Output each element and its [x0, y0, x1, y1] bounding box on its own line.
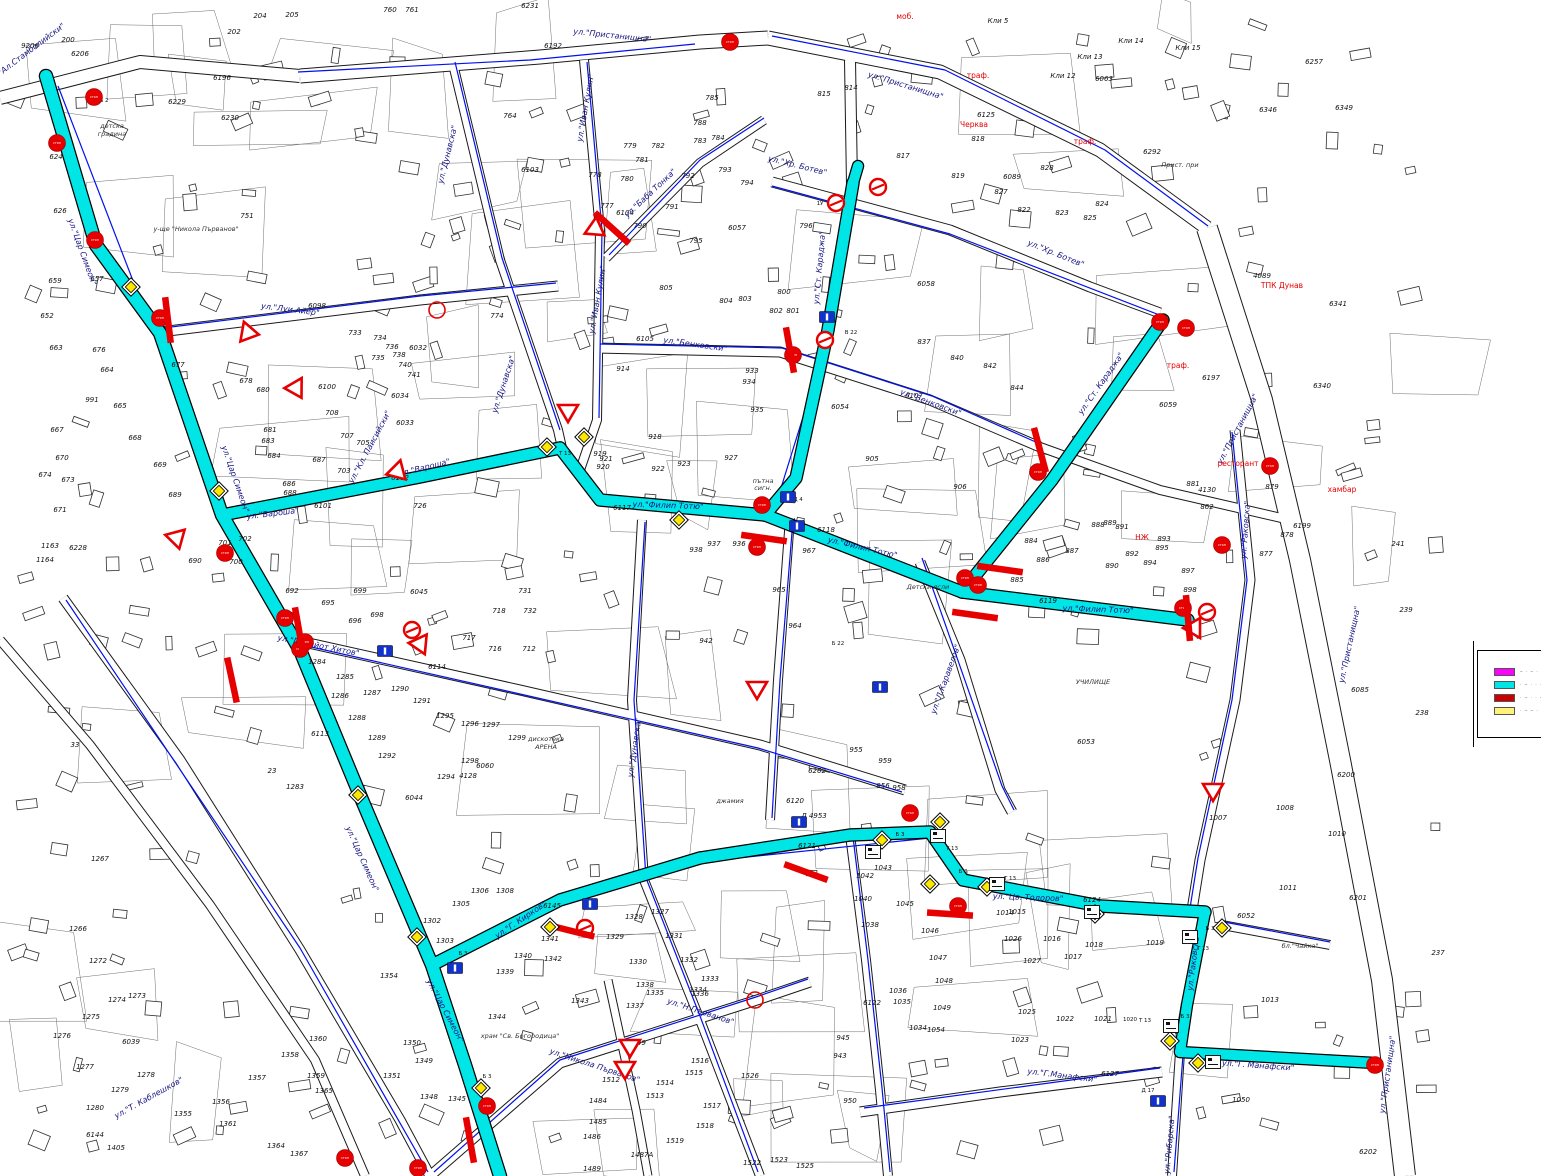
- parcel-number: 1355: [174, 1110, 192, 1118]
- parcel-number: 1008: [1276, 804, 1294, 812]
- stop-sign-icon: стоп: [1178, 320, 1195, 337]
- building-footprint: [129, 605, 149, 616]
- info-sign-icon: [820, 312, 835, 323]
- parcel-number: 1266: [69, 925, 87, 933]
- parcel-number: 1489: [583, 1165, 601, 1173]
- parcel-number: 683: [261, 437, 274, 445]
- parcel-number: 6196: [213, 74, 231, 82]
- parcel-number: 671: [53, 506, 66, 514]
- parcel-number: 1333: [701, 975, 719, 983]
- parcel-number: 700: [229, 558, 243, 566]
- parcel-number: 1523: [770, 1156, 788, 1164]
- parcel-boundary: [169, 1042, 221, 1143]
- parcel-number: 1351: [383, 1072, 401, 1080]
- parcel-number: 967: [802, 547, 816, 555]
- parcel-number: 667: [50, 426, 64, 434]
- building-footprint: [223, 1001, 239, 1018]
- parcel-number: 740: [398, 361, 412, 369]
- building-footprint: [18, 572, 34, 584]
- parcel-number: 1284: [308, 658, 326, 666]
- parcel-number: 991: [85, 396, 98, 404]
- building-footprint: [1064, 519, 1080, 530]
- parcel-number: 955: [849, 746, 863, 754]
- building-footprint: [1248, 19, 1267, 31]
- building-footprint: [1230, 54, 1252, 70]
- building-footprint: [590, 865, 599, 877]
- parcel-boundary: [743, 995, 835, 1107]
- building-footprint: [1244, 428, 1259, 438]
- legend-item-label: · – · · · –: [1520, 682, 1541, 687]
- poi-label: храм "Св. Богородица": [480, 1032, 559, 1040]
- parcel-number: 1027: [1023, 957, 1041, 965]
- stop-sign-icon: стоп: [1262, 458, 1279, 475]
- info-sign-icon: [873, 682, 888, 693]
- parcel-number: 898: [1183, 586, 1197, 594]
- building-footprint: [489, 297, 502, 307]
- map-legend: · · · · · – · – · – · – · – · · · – · – …: [1477, 650, 1541, 738]
- parcel-number: 793: [718, 166, 731, 174]
- building-layer: [5, 19, 1443, 1159]
- building-footprint: [1405, 991, 1421, 1007]
- building-footprint: [504, 219, 521, 229]
- building-footprint: [430, 267, 438, 284]
- parcel-number: 6292: [1143, 148, 1161, 156]
- poi-label-red: ресторант: [1217, 459, 1259, 468]
- stop-sign-icon: стоп: [410, 1160, 427, 1176]
- building-footprint: [200, 293, 221, 312]
- parcel-number: 1525: [796, 1162, 814, 1170]
- legend-item-label: · – · · –: [1520, 695, 1541, 700]
- parcel-number: 738: [392, 351, 406, 359]
- parcel-number: 1040: [854, 895, 872, 903]
- parcel-number: 1331: [665, 932, 683, 940]
- parcel-number: 673: [61, 476, 74, 484]
- building-footprint: [884, 255, 895, 271]
- building-footprint: [704, 577, 722, 595]
- parcel-number: 731: [518, 587, 531, 595]
- parcel-number: 805: [659, 284, 673, 292]
- building-footprint: [72, 416, 89, 427]
- building-footprint: [1053, 1046, 1068, 1056]
- parcel-number: 202: [227, 28, 241, 36]
- parcel-number: 828: [1040, 164, 1054, 172]
- stop-sign-icon: стоп: [1367, 1057, 1384, 1074]
- building-footprint: [308, 91, 331, 107]
- svg-text:стоп: стоп: [221, 551, 229, 555]
- building-footprint: [1126, 213, 1152, 236]
- parcel-number: 956: [876, 782, 890, 790]
- parcel-number: 1050: [1232, 1096, 1250, 1104]
- building-footprint: [865, 105, 874, 115]
- street-label: ул."Пристанищна": [1337, 605, 1362, 684]
- parcel-number: Кли 14: [1118, 37, 1143, 45]
- info-sign-icon: [792, 817, 807, 828]
- building-footprint: [421, 232, 435, 248]
- building-footprint: [933, 446, 945, 460]
- parcel-number: 881: [1186, 480, 1199, 488]
- building-footprint: [522, 1001, 539, 1014]
- building-footprint: [951, 200, 974, 213]
- parcel-number: 1342: [544, 955, 562, 963]
- building-footprint: [910, 1080, 926, 1091]
- building-footprint: [1039, 1046, 1048, 1056]
- building-footprint: [1365, 437, 1380, 444]
- parcel-number: 1018: [1085, 941, 1103, 949]
- parcel-number: 6127: [1101, 1070, 1119, 1078]
- no-entry-sign-icon: [828, 195, 844, 211]
- yield-sign-icon: [558, 405, 578, 422]
- sign-plate-icon: [990, 878, 1005, 891]
- sign-plate-icon: [1085, 906, 1100, 919]
- parcel-number: 1296: [461, 720, 479, 728]
- building-footprint: [44, 642, 60, 661]
- sign-code-label: Т 13: [1196, 946, 1210, 952]
- building-footprint: [255, 446, 266, 455]
- parcel-number: 814: [844, 84, 857, 92]
- parcel-number: 1163: [41, 542, 59, 550]
- parcel-number: 922: [651, 465, 665, 473]
- building-footprint: [113, 909, 127, 918]
- poi-label-red: НЖ: [1135, 533, 1149, 542]
- street-label: ул."Цв. Тодоров": [992, 892, 1064, 903]
- poi-label: УЧИЛИЩЕ: [1076, 678, 1111, 686]
- parcel-number: 6262: [808, 767, 826, 775]
- parcel-number: 1035: [893, 998, 911, 1006]
- building-footprint: [1367, 419, 1380, 430]
- building-footprint: [1076, 34, 1089, 46]
- parcel-number: 6229: [168, 98, 186, 106]
- parcel-number: 6113: [311, 730, 329, 738]
- parcel-number: 1522: [743, 1159, 761, 1167]
- parcel-number: 819: [951, 172, 965, 180]
- parcel-number: 6057: [728, 224, 746, 232]
- parcel-number: 676: [92, 346, 106, 354]
- parcel-number: 918: [648, 433, 662, 441]
- parcel-number: 678: [239, 377, 253, 385]
- parcel-number: 815: [817, 90, 831, 98]
- building-footprint: [1026, 833, 1044, 845]
- building-footprint: [1416, 1030, 1430, 1043]
- building-footprint: [658, 228, 680, 236]
- sign-plate-icon: [1164, 1020, 1179, 1033]
- parcel-number: 702: [238, 535, 252, 543]
- parcel-number: 6045: [410, 588, 428, 596]
- parcel-number: 4089: [1253, 272, 1271, 280]
- parcel-number: 6144: [86, 1131, 104, 1139]
- parcel-number: 781: [635, 156, 648, 164]
- svg-text:стоп: стоп: [91, 238, 99, 242]
- parcel-number: 6125: [977, 111, 995, 119]
- parcel-number: 1367: [290, 1150, 308, 1158]
- building-footprint: [1003, 1058, 1019, 1077]
- poi-label-red: Черква: [960, 120, 988, 129]
- parcel-number: 1034: [909, 1024, 927, 1032]
- parcel-number: 6039: [122, 1038, 140, 1046]
- parcel-number: 6060: [476, 762, 494, 770]
- parcel-boundary: [1352, 506, 1396, 586]
- parcel-boundary: [1390, 333, 1491, 395]
- building-footprint: [782, 704, 794, 718]
- parcel-number: 1022: [1056, 1015, 1074, 1023]
- stop-sign-icon: стоп: [1152, 314, 1169, 331]
- parcel-number: 668: [128, 434, 142, 442]
- building-footprint: [372, 665, 382, 679]
- building-footprint: [1398, 286, 1423, 305]
- building-footprint: [242, 189, 256, 196]
- parcel-number: 1334: [689, 986, 707, 994]
- parcel-number: 844: [1010, 384, 1023, 392]
- poi-label: бл."Чайка": [1282, 942, 1319, 950]
- building-footprint: [353, 888, 361, 899]
- yield-sign-icon: [165, 530, 189, 552]
- parcel-number: 6192: [544, 42, 562, 50]
- building-footprint: [135, 93, 153, 107]
- parcel-number: 716: [488, 645, 502, 653]
- stop-sign-icon: стоп: [87, 232, 104, 249]
- parcel-number: 6063: [1095, 75, 1113, 83]
- svg-text:стоп: стоп: [1182, 326, 1190, 330]
- parcel-number: 788: [693, 119, 707, 127]
- building-footprint: [1196, 1107, 1206, 1119]
- parcel-number: 1025: [1018, 1008, 1036, 1016]
- parcel-number: 1343: [571, 997, 589, 1005]
- poi-label-red: хамбар: [1328, 485, 1357, 494]
- parcel-number: 804: [719, 297, 732, 305]
- building-footprint: [1405, 166, 1416, 174]
- parcel-number: 818: [971, 135, 985, 143]
- building-footprint: [153, 245, 163, 256]
- legend-swatch-cyan-icon: [1494, 681, 1515, 689]
- parcel-number: 1007: [1209, 814, 1227, 822]
- legend-swatch-magenta-icon: [1494, 668, 1515, 676]
- building-footprint: [449, 217, 465, 234]
- parcel-number: 923: [677, 460, 690, 468]
- poi-label-red: ТПК Дунав: [1260, 281, 1303, 290]
- parcel-number: 1290: [391, 685, 409, 693]
- sign-plate-icon: [1183, 931, 1198, 944]
- building-footprint: [347, 385, 359, 399]
- parcel-number: 905: [865, 455, 879, 463]
- parcel-number: 784: [711, 134, 724, 142]
- sign-code-label: Б 3: [458, 951, 468, 957]
- building-footprint: [1428, 537, 1443, 554]
- parcel-number: 735: [371, 354, 385, 362]
- priority-road-sign-icon: [541, 918, 559, 936]
- building-footprint: [1260, 1118, 1279, 1130]
- legend-item: · – – · ·: [1494, 704, 1541, 717]
- parcel-number: 897: [1181, 567, 1195, 575]
- poi-label-red: траф.: [1167, 361, 1190, 370]
- parcel-number: 934: [742, 378, 755, 386]
- parcel-number: 1274: [108, 996, 126, 1004]
- poi-label-red: моб.: [896, 12, 913, 21]
- street-label: ул."Ст. Караджа": [812, 231, 827, 306]
- parcel-number: 886: [1036, 556, 1050, 564]
- parcel-number: 1359: [307, 1072, 325, 1080]
- building-footprint: [110, 954, 125, 965]
- building-footprint: [341, 895, 353, 903]
- parcel-number: 6341: [1329, 300, 1347, 308]
- parcel-number: 764: [503, 112, 516, 120]
- sign-code-label: В 22: [845, 330, 858, 336]
- building-footprint: [475, 477, 500, 497]
- parcel-number: 1305: [452, 900, 470, 908]
- parcel-number: 1010: [1328, 830, 1346, 838]
- parcel-number: 1285: [336, 673, 354, 681]
- parcel-number: 659: [48, 277, 62, 285]
- stop-sign-icon: стоп: [722, 34, 739, 51]
- parcel-number: 796: [799, 222, 813, 230]
- building-footprint: [430, 341, 443, 359]
- info-sign-icon: [781, 492, 796, 503]
- building-footprint: [331, 47, 340, 63]
- parcel-number: 1287: [363, 689, 381, 697]
- parcel-number: 23: [268, 767, 277, 775]
- parcel-number: 1295: [436, 712, 454, 720]
- building-footprint: [166, 636, 173, 650]
- parcel-number: 921: [599, 455, 612, 463]
- building-footprint: [580, 572, 597, 582]
- parcel-number: 893: [1157, 535, 1170, 543]
- parcel-number: 783: [693, 137, 706, 145]
- svg-text:стоп: стоп: [1371, 1063, 1379, 1067]
- parcel-number: 1308: [496, 887, 514, 895]
- svg-text:стоп: стоп: [974, 583, 982, 587]
- cadastral-map-canvas[interactable]: 9206200620620220420561967607616231619262…: [0, 0, 1541, 1176]
- poi-label: Прист. при: [1161, 161, 1198, 169]
- parcel-number: 958: [892, 784, 906, 792]
- parcel-number: 1516: [691, 1057, 709, 1065]
- parcel-boundary: [720, 891, 800, 962]
- building-footprint: [768, 268, 779, 282]
- parcel-number: 895: [1155, 544, 1169, 552]
- building-footprint: [922, 418, 943, 439]
- building-footprint: [390, 567, 400, 577]
- sign-code-label: Б 22: [832, 641, 845, 647]
- parcel-number: 6121: [798, 842, 816, 850]
- parcel-number: 1356: [212, 1098, 230, 1106]
- poi-label: градина: [98, 130, 126, 138]
- parcel-number: 670: [55, 454, 69, 462]
- building-footprint: [485, 71, 503, 87]
- parcel-number: 802: [769, 307, 783, 315]
- parcel-number: 6340: [1313, 382, 1331, 390]
- parcel-number: 1405: [107, 1144, 125, 1152]
- svg-text:стоп: стоп: [1218, 543, 1226, 547]
- building-footprint: [834, 513, 843, 523]
- parcel-number: 726: [413, 502, 427, 510]
- building-footprint: [940, 540, 951, 554]
- parcel-number: 1292: [378, 752, 396, 760]
- building-footprint: [288, 1080, 311, 1092]
- building-footprint: [373, 273, 394, 285]
- parcel-number: 794: [740, 179, 753, 187]
- yield-sign-icon: [284, 378, 310, 403]
- building-footprint: [399, 161, 420, 175]
- stop-sign-icon: стоп: [49, 135, 66, 152]
- building-footprint: [752, 139, 767, 152]
- building-footprint: [196, 641, 217, 657]
- building-footprint: [87, 1140, 99, 1152]
- parcel-number: 1357: [248, 1074, 266, 1082]
- legend-item-label: · – – · ·: [1520, 708, 1541, 713]
- parcel-number: 1365: [315, 1087, 333, 1095]
- building-footprint: [546, 650, 556, 662]
- building-footprint: [451, 233, 460, 241]
- street-surface: [0, 640, 365, 1176]
- parcel-number: 1021: [1094, 1015, 1112, 1023]
- parcel-number: 6124: [1083, 896, 1101, 904]
- building-footprint: [59, 982, 76, 1001]
- building-footprint: [957, 1141, 978, 1159]
- parcel-number: 1267: [91, 855, 109, 863]
- parcel-number: 777: [600, 202, 614, 210]
- building-footprint: [1350, 48, 1371, 61]
- parcel-number: 891: [1115, 523, 1128, 531]
- parcel-number: 943: [833, 1052, 846, 1060]
- parcel-number: 1487А: [631, 1151, 654, 1159]
- sign-code-label: Б 3: [958, 869, 968, 875]
- road-closure-bar-icon: [224, 657, 240, 703]
- building-footprint: [843, 588, 855, 601]
- parcel-number: 239: [1399, 606, 1413, 614]
- stop-sign-icon: стоп: [217, 545, 234, 562]
- svg-text:стоп: стоп: [414, 1166, 422, 1170]
- parcel-number: 669: [153, 461, 167, 469]
- building-footprint: [853, 622, 864, 639]
- parcel-number: 1011: [1279, 884, 1297, 892]
- sign-plate-icon: [1206, 1056, 1221, 1069]
- parcel-number: 878: [1280, 531, 1294, 539]
- sign-code-label: Б 3: [482, 1074, 492, 1080]
- building-footprint: [608, 306, 629, 321]
- parcel-number: 1294: [437, 773, 455, 781]
- street-surface: [770, 518, 790, 820]
- building-footprint: [966, 796, 983, 806]
- parcel-number: 884: [1024, 537, 1037, 545]
- parcel-number: 200: [61, 36, 75, 44]
- building-footprint: [289, 1006, 309, 1019]
- parcel-number: 1277: [76, 1063, 94, 1071]
- svg-text:стоп: стоп: [1266, 464, 1274, 468]
- sign-plate-icon: [931, 830, 946, 843]
- stop-sign-icon: стоп: [902, 805, 919, 822]
- building-footprint: [25, 285, 42, 303]
- parcel-boundary: [600, 440, 672, 534]
- parcel-number: 733: [348, 329, 361, 337]
- parcel-number: 1329: [606, 933, 624, 941]
- building-footprint: [734, 629, 748, 644]
- cadastral-map-viewport[interactable]: 9206200620620220420561967607616231619262…: [0, 0, 1541, 1176]
- parcel-boundary: [979, 266, 1033, 341]
- building-footprint: [189, 184, 197, 192]
- parcel-number: 914: [616, 365, 629, 373]
- parcel-number: 933: [745, 367, 758, 375]
- utility-line-layer: [58, 36, 1330, 1172]
- poi-label: Детски ясли: [906, 583, 950, 591]
- parcel-number: 6103: [521, 166, 539, 174]
- parcel-number: 1017: [1064, 953, 1082, 961]
- parcel-number: 6044: [405, 794, 423, 802]
- parcel-number: 822: [1017, 206, 1031, 214]
- parcel-number: 936: [732, 540, 746, 548]
- street-label: ул."Дунавска": [436, 124, 459, 185]
- building-footprint: [78, 483, 92, 497]
- parcel-number: 6105: [636, 335, 654, 343]
- parcel-number: 1364: [267, 1142, 285, 1150]
- building-footprint: [23, 949, 39, 961]
- parcel-number: 862: [1200, 503, 1214, 511]
